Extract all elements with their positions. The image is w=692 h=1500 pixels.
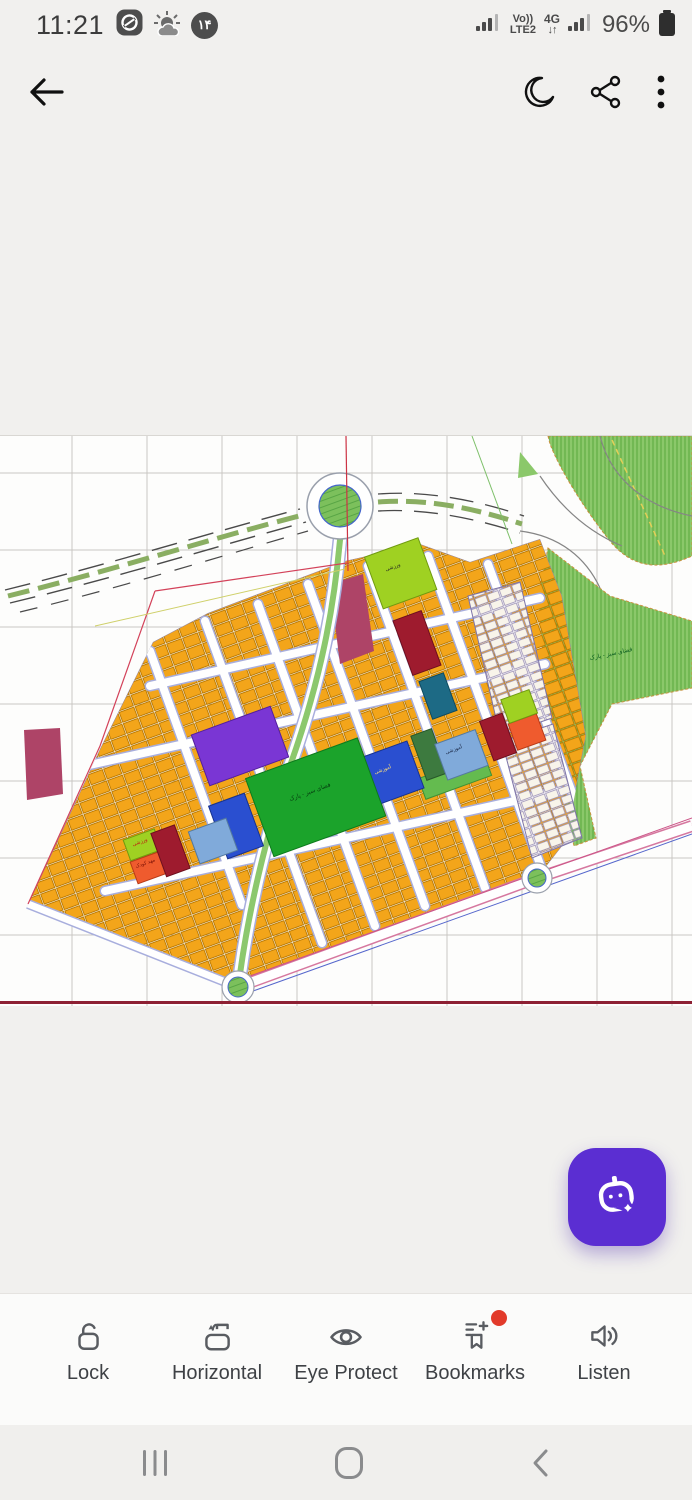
bookmarks-button[interactable]: Bookmarks <box>415 1314 535 1425</box>
listen-button[interactable]: Listen <box>544 1314 664 1425</box>
volte-label: Vo)) LTE2 <box>510 14 536 36</box>
signal-strength-icon <box>476 12 502 39</box>
bookmarks-label: Bookmarks <box>425 1362 525 1385</box>
unlock-icon <box>71 1318 105 1354</box>
eitaa-app-icon <box>116 9 143 41</box>
bookmarks-add-icon <box>457 1318 493 1354</box>
home-button[interactable] <box>334 1446 364 1480</box>
listen-label: Listen <box>577 1362 630 1385</box>
back-button[interactable] <box>26 75 66 109</box>
weather-sun-cloud-icon <box>152 10 182 41</box>
ai-assistant-fab[interactable] <box>568 1148 666 1246</box>
eye-protect-button[interactable]: Eye Protect <box>286 1314 406 1425</box>
battery-percent: 96% <box>602 11 650 39</box>
sheet-border-line <box>0 1001 692 1004</box>
system-nav-bar <box>0 1425 692 1500</box>
robot-icon <box>588 1168 646 1226</box>
notification-icons: ۱۴ <box>116 9 218 41</box>
eye-icon <box>327 1318 365 1354</box>
recent-apps-button[interactable] <box>142 1448 168 1478</box>
eye-protect-label: Eye Protect <box>294 1362 397 1385</box>
speaker-icon <box>586 1318 622 1354</box>
share-icon[interactable] <box>590 75 622 109</box>
lock-button[interactable]: Lock <box>28 1314 148 1425</box>
horizontal-button[interactable]: Horizontal <box>157 1314 277 1425</box>
nav-back-button[interactable] <box>530 1447 550 1479</box>
network-4g-label: 4G ↓↑ <box>544 14 560 36</box>
clock: 11:21 <box>36 10 104 41</box>
horizontal-label: Horizontal <box>172 1362 262 1385</box>
signal-strength-icon-2 <box>568 12 594 39</box>
more-options-icon[interactable] <box>656 74 666 110</box>
calendar-day-14-badge: ۱۴ <box>191 12 218 39</box>
reader-toolbar: Lock Horizontal Eye Protect <box>0 1293 692 1425</box>
phone-screen: 11:21 ۱۴ Vo)) LTE2 4G ↓↑ <box>0 0 692 1500</box>
app-toolbar <box>0 50 692 134</box>
status-bar: 11:21 ۱۴ Vo)) LTE2 4G ↓↑ <box>0 0 692 50</box>
battery-icon <box>658 9 676 42</box>
night-mode-icon[interactable] <box>522 75 556 109</box>
lock-label: Lock <box>67 1362 109 1385</box>
rotate-horizontal-icon <box>199 1318 235 1354</box>
city-plan-map[interactable]: فضای سبز - پارک فضای سبز - پارک ورزشی ور… <box>0 435 692 1005</box>
bookmarks-badge-dot <box>491 1310 507 1326</box>
